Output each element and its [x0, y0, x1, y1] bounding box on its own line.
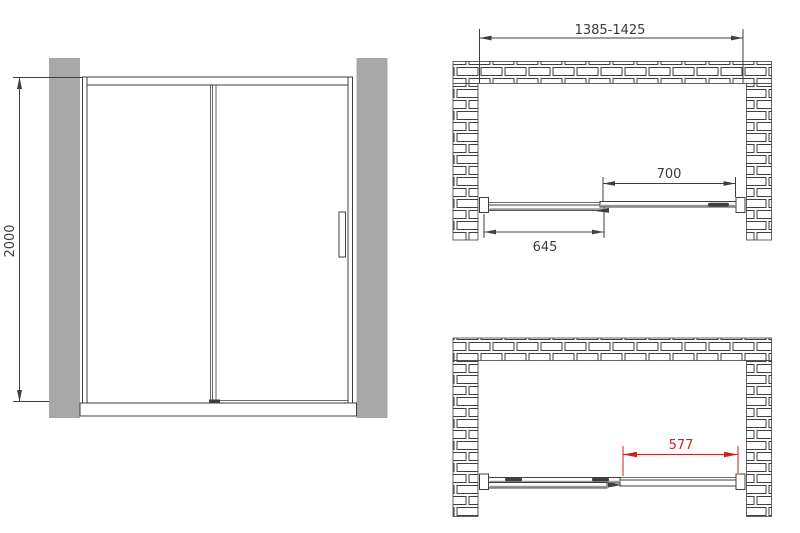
plan-view-closed: 1385-1425 700: [453, 23, 772, 255]
plan1-left-brick-wall: [453, 84, 478, 241]
handle-plan: [708, 203, 729, 207]
header-rail: [83, 77, 353, 85]
plan1-right-brick-wall: [747, 84, 772, 241]
elevation-left-wall: [49, 58, 80, 418]
arrow-left-icon: [480, 36, 492, 41]
plan1-top-brick-wall: [453, 62, 772, 84]
dimension-label-700: 700: [657, 167, 682, 182]
plan-view-open: 577: [453, 338, 772, 517]
dimension-label-645: 645: [533, 240, 558, 255]
plan2-door-assembly: [480, 474, 746, 490]
plan2-left-wall-profile: [480, 474, 489, 490]
bottom-guide-block: [209, 400, 220, 404]
left-stile-profile: [83, 77, 88, 403]
door-handle: [339, 212, 346, 257]
arrow-right-icon: [592, 230, 604, 235]
arrow-left-icon: [623, 452, 637, 458]
plan1-right-wall-profile: [736, 198, 745, 213]
plan2-left-brick-wall: [453, 361, 478, 517]
handle-plan-left: [505, 478, 522, 482]
dimension-opening: 577: [623, 438, 738, 476]
arrow-left-icon: [603, 181, 615, 186]
door-frame: [83, 77, 353, 403]
front-elevation-view: 2000: [3, 58, 388, 418]
arrow-up-icon: [17, 77, 22, 89]
arrow-right-icon: [724, 452, 738, 458]
arrow-left-icon: [484, 230, 496, 235]
plan1-door-assembly: [480, 198, 746, 213]
dimension-label-width-range: 1385-1425: [575, 23, 646, 38]
technical-drawing-canvas: 2000 1385-1425: [0, 0, 800, 533]
right-stile-profile: [348, 77, 353, 403]
dimension-sliding-panel: 700: [603, 167, 736, 201]
arrow-right-icon: [731, 36, 743, 41]
exposed-track: [620, 480, 736, 486]
elevation-right-wall: [357, 58, 388, 418]
handle-plan-right: [592, 478, 609, 482]
dimension-fixed-panel: 645: [484, 212, 604, 255]
dimension-label-577: 577: [669, 438, 694, 453]
arrow-down-icon: [17, 390, 22, 402]
plan2-top-brick-wall: [453, 338, 772, 361]
stage: 2000 1385-1425: [0, 0, 800, 533]
dimension-label-2000: 2000: [3, 224, 18, 257]
arrow-right-icon: [724, 181, 736, 186]
shower-tray: [80, 403, 357, 416]
plan1-left-wall-profile: [480, 198, 489, 213]
plan2-right-wall-profile: [736, 474, 745, 490]
panel-overlap-junction: [211, 85, 217, 403]
plan2-right-brick-wall: [747, 361, 772, 517]
